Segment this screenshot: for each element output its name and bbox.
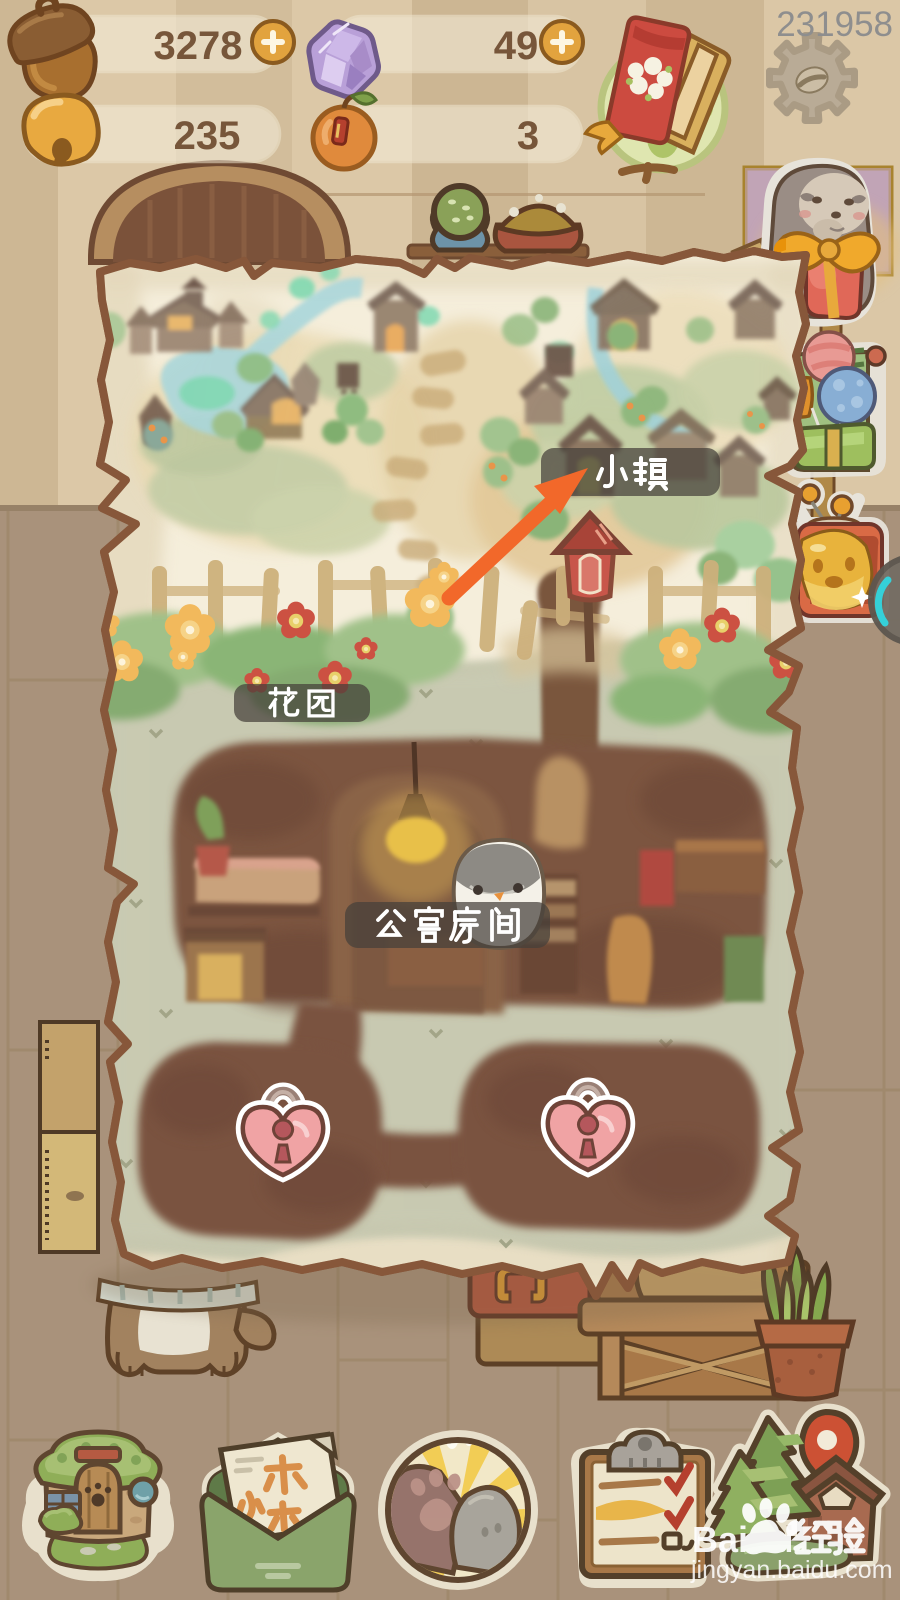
svg-text:235: 235 — [174, 114, 241, 158]
svg-text:231958: 231958 — [776, 5, 893, 44]
svg-text:3278: 3278 — [154, 24, 243, 68]
svg-text:3: 3 — [517, 114, 539, 158]
svg-text:jingyan.baidu.com: jingyan.baidu.com — [690, 1556, 893, 1584]
svg-text:Bai: Bai — [692, 1519, 748, 1560]
svg-text:49: 49 — [494, 24, 539, 68]
